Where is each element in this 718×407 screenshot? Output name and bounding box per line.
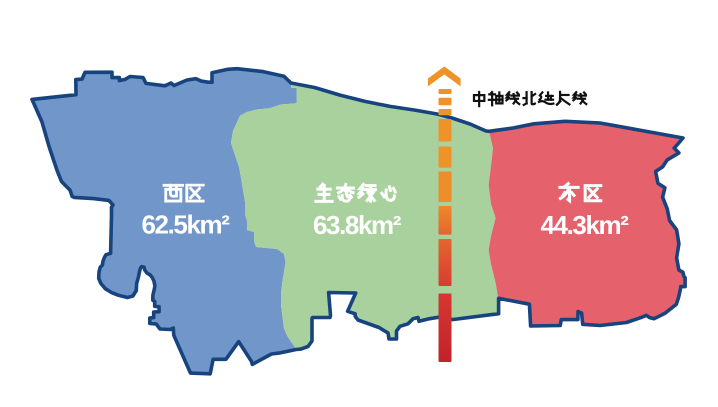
svg-text:44.3km²: 44.3km² [540,210,629,240]
svg-text:63.8km²: 63.8km² [313,210,402,240]
svg-text:62.5km²: 62.5km² [141,210,230,240]
